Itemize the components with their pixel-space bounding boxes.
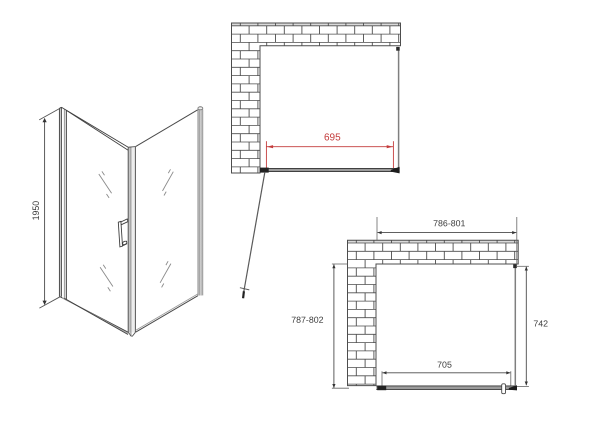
svg-text:786-801: 786-801	[433, 218, 465, 228]
svg-text:1950: 1950	[31, 201, 41, 221]
svg-text:695: 695	[324, 132, 341, 143]
svg-text:787-802: 787-802	[291, 315, 323, 325]
svg-text:742: 742	[533, 318, 548, 328]
svg-text:705: 705	[437, 360, 452, 370]
